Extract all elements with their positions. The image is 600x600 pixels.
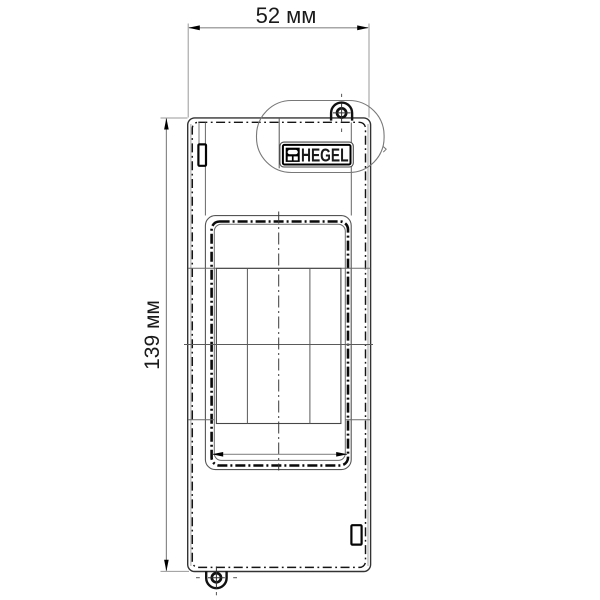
svg-text:52 мм: 52 мм	[256, 3, 317, 28]
svg-text:139 мм: 139 мм	[141, 300, 164, 370]
svg-text:HEGEL: HEGEL	[301, 144, 349, 165]
